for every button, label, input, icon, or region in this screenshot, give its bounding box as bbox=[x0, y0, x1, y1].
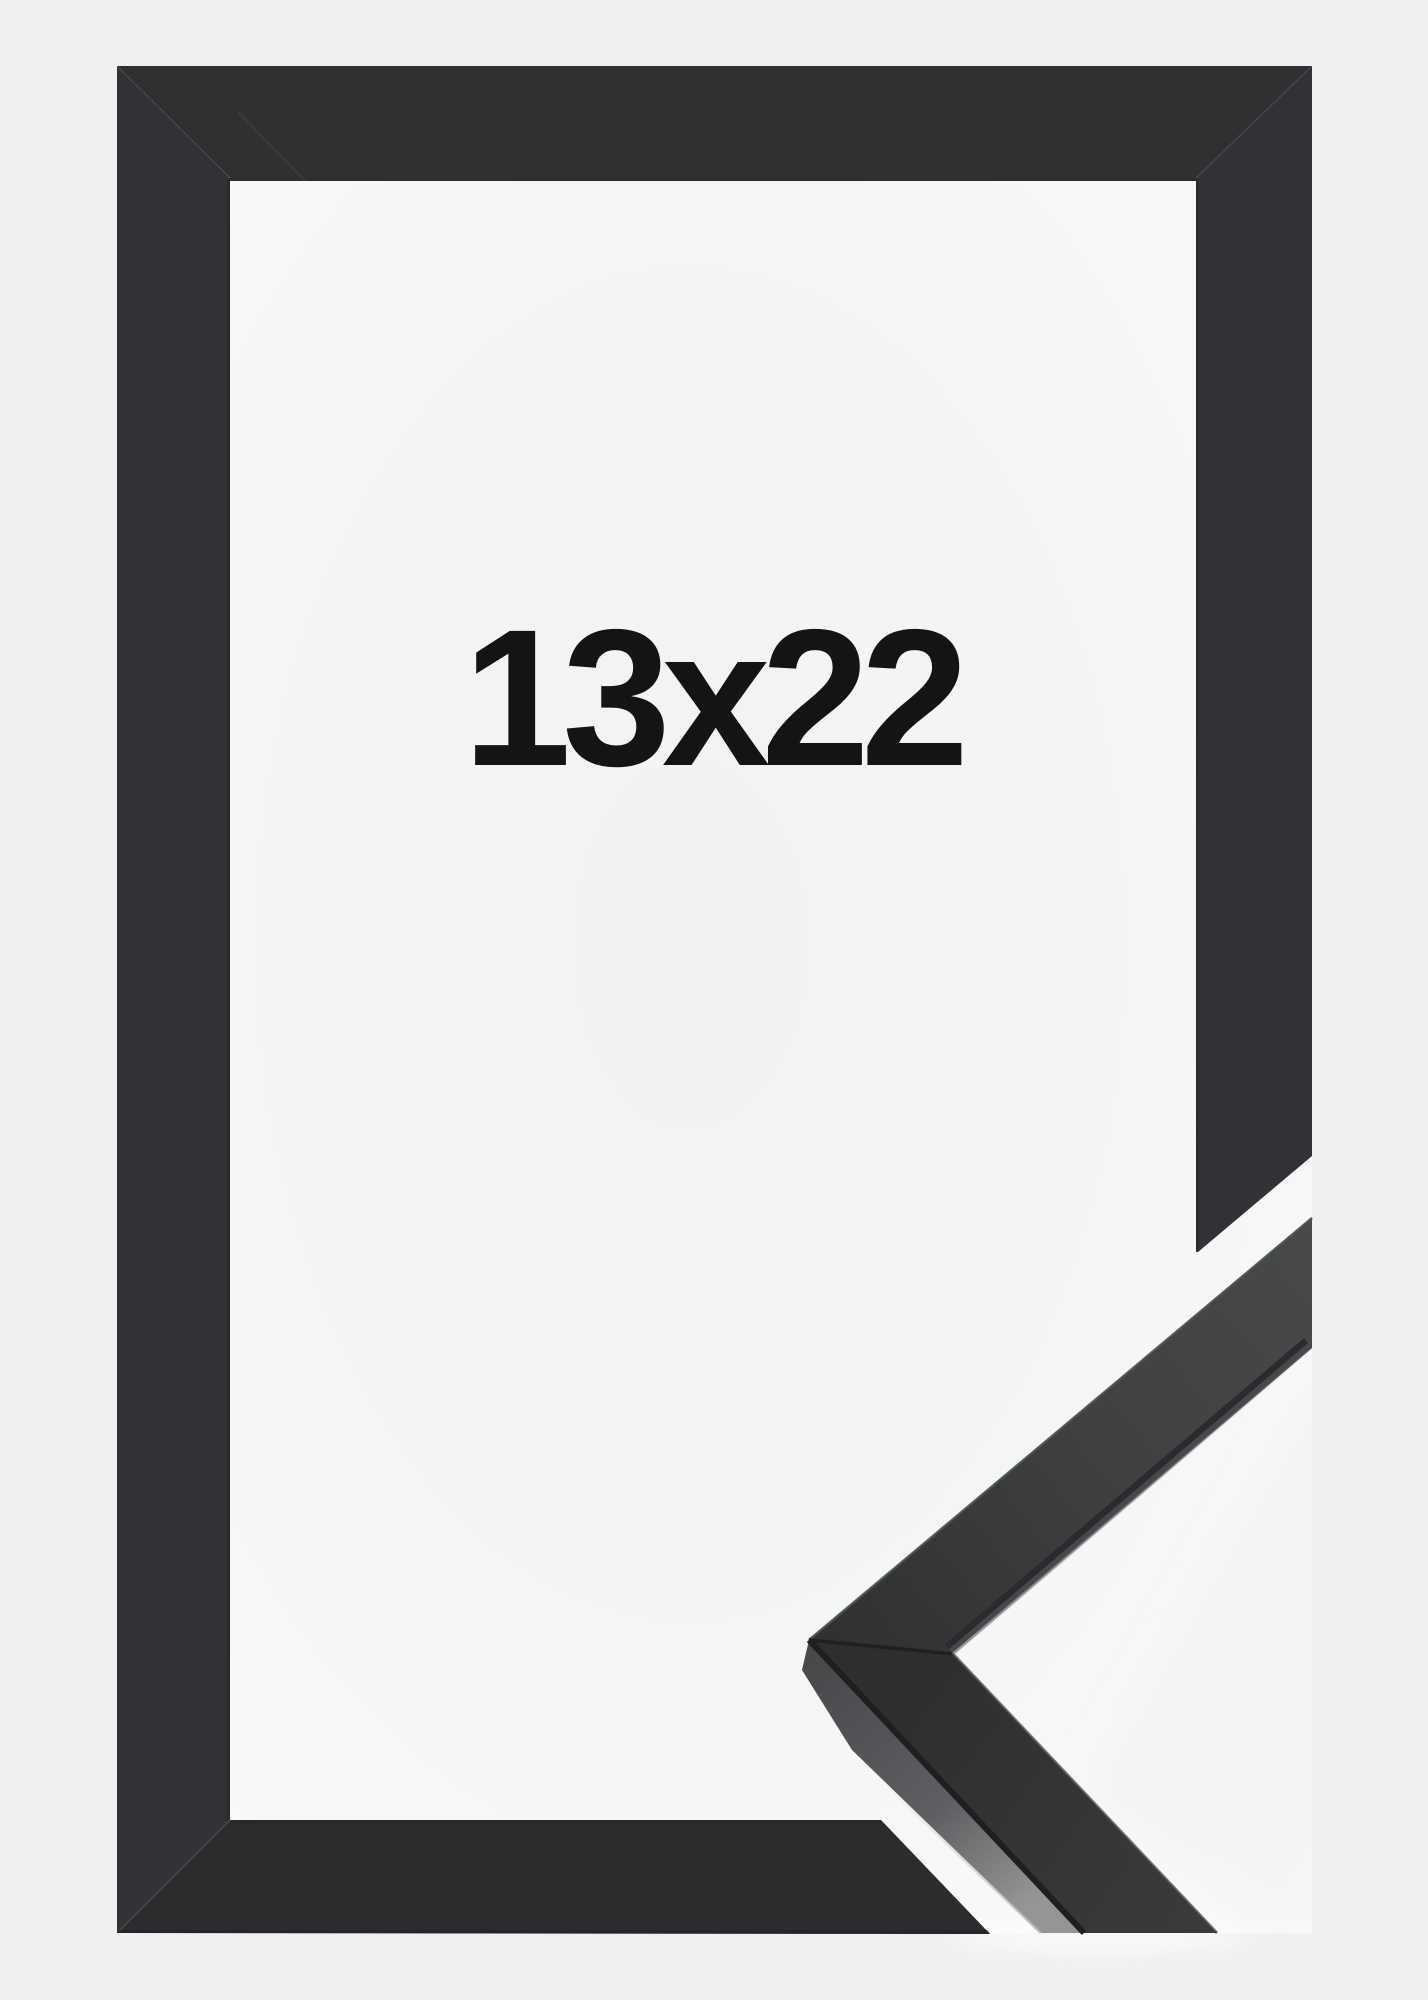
svg-text:13x22: 13x22 bbox=[463, 589, 962, 807]
